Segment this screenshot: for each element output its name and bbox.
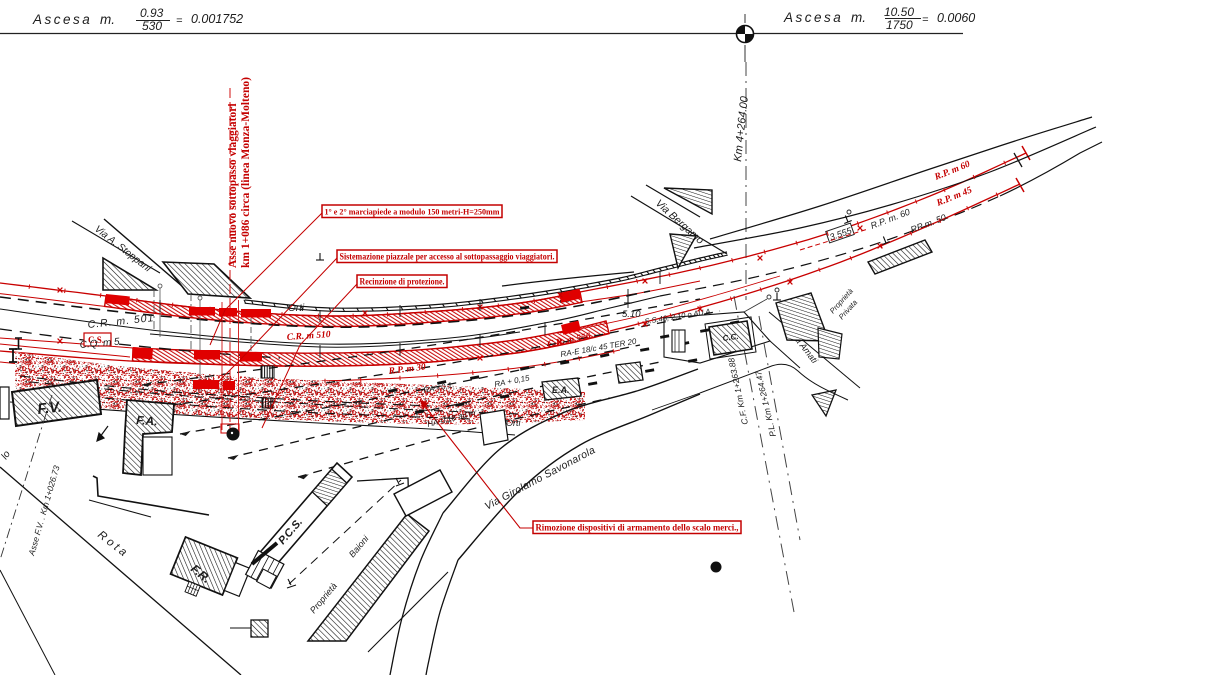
svg-text:0.93: 0.93 <box>140 6 164 20</box>
svg-text:1750: 1750 <box>886 18 913 32</box>
svg-text:Sistemazione piazzale per acce: Sistemazione piazzale per accesso al sot… <box>340 252 555 262</box>
svg-text:0.001752: 0.001752 <box>191 12 243 26</box>
svg-text:5.10: 5.10 <box>622 309 641 320</box>
svg-text:km 1+086 circa (linea Monza-Mo: km 1+086 circa (linea Monza-Molteno) <box>240 77 252 268</box>
svg-text:Ascesa: Ascesa <box>32 12 92 27</box>
svg-text:E.A.: E.A. <box>552 385 570 395</box>
svg-text:10.50: 10.50 <box>884 5 914 19</box>
svg-text:=: = <box>176 15 183 27</box>
svg-text:Rimozione dispositivi di armam: Rimozione dispositivi di armamento dello… <box>536 523 739 533</box>
svg-text:0.0060: 0.0060 <box>937 11 975 25</box>
svg-text:530: 530 <box>142 19 162 33</box>
svg-text:Ascesa: Ascesa <box>783 10 843 25</box>
svg-text:1° e 2° marciapiede a modulo 1: 1° e 2° marciapiede a modulo 150 metri-H… <box>325 207 501 217</box>
svg-text:Orti: Orti <box>506 418 521 428</box>
svg-text:m.: m. <box>851 10 866 25</box>
svg-text:Orti: Orti <box>288 303 305 314</box>
svg-text:Recinzione di protezione.: Recinzione di protezione. <box>360 277 445 287</box>
svg-text:Asse nuovo sottopasso viaggia: Asse nuovo sottopasso viaggiatori <box>227 103 239 268</box>
svg-text:m.: m. <box>100 12 115 27</box>
svg-text:=: = <box>922 14 929 26</box>
svg-text:F.A.: F.A. <box>136 413 158 428</box>
